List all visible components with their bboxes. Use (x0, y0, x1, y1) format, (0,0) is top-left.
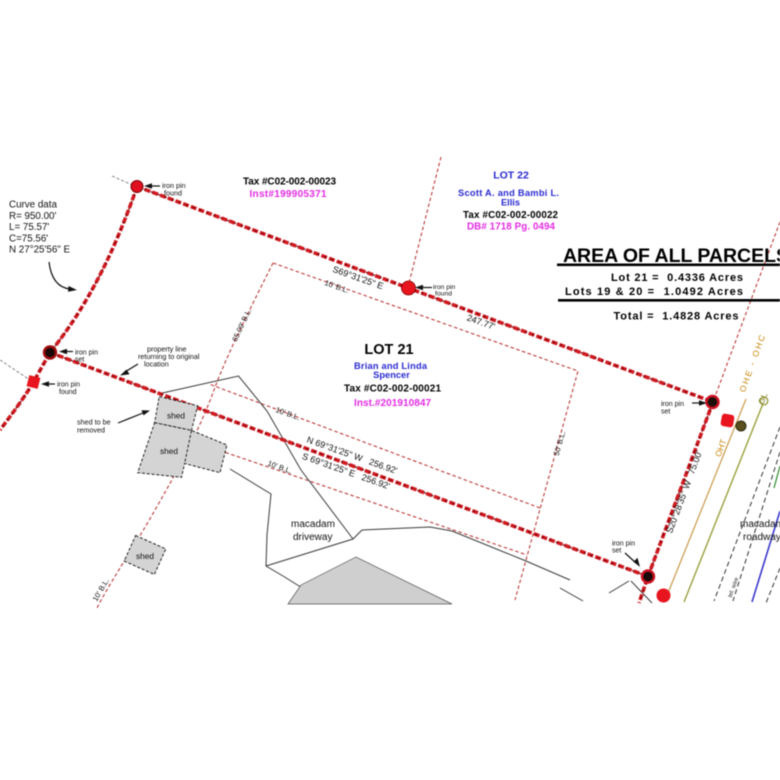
svg-text:iron pin: iron pin (75, 350, 98, 357)
svg-text:R= 950.00': R= 950.00' (9, 211, 56, 222)
svg-text:LOT 21: LOT 21 (364, 342, 413, 358)
svg-text:Tax #C02-002-00023: Tax #C02-002-00023 (243, 177, 336, 188)
svg-text:Curve data: Curve data (9, 200, 57, 211)
svg-text:Scott A. and Bambi L.: Scott A. and Bambi L. (458, 188, 559, 198)
svg-text:removed: removed (77, 426, 105, 435)
svg-text:Tax #C02-002-00021: Tax #C02-002-00021 (344, 384, 441, 395)
svg-text:Spencer: Spencer (373, 370, 410, 380)
svg-text:found: found (435, 291, 452, 298)
svg-text:location: location (144, 360, 169, 369)
svg-text:Inst.#201910847: Inst.#201910847 (354, 398, 431, 409)
svg-text:LOT 22: LOT 22 (493, 170, 529, 182)
svg-text:Lot 21 = 0.4336 Acres: Lot 21 = 0.4336 Acres (611, 272, 743, 284)
svg-text:found: found (164, 189, 182, 198)
svg-text:set: set (661, 409, 670, 416)
svg-text:iron pin: iron pin (661, 401, 684, 408)
svg-text:set: set (612, 548, 621, 555)
svg-text:shed: shed (160, 446, 178, 456)
svg-text:Tax #C02-002-00022: Tax #C02-002-00022 (463, 210, 559, 221)
svg-text:L= 75.57': L= 75.57' (9, 222, 49, 233)
svg-text:roadway: roadway (743, 532, 780, 543)
svg-text:DB# 1718 Pg. 0494: DB# 1718 Pg. 0494 (467, 222, 556, 233)
svg-text:found: found (59, 389, 77, 396)
svg-text:Inst#199905371: Inst#199905371 (250, 189, 327, 200)
svg-text:driveway: driveway (293, 532, 332, 543)
svg-text:Total = 1.4828 Acres: Total = 1.4828 Acres (614, 311, 739, 323)
svg-text:shed: shed (136, 551, 154, 561)
svg-text:iron pin: iron pin (57, 382, 80, 389)
svg-text:iron pin: iron pin (612, 541, 635, 548)
svg-text:shed: shed (167, 411, 185, 421)
svg-text:macadam: macadam (740, 519, 780, 530)
svg-text:N 27°25'56" E: N 27°25'56" E (9, 245, 70, 256)
svg-text:C=75.56': C=75.56' (9, 233, 48, 244)
svg-text:macadam: macadam (291, 519, 335, 530)
svg-text:Ellis: Ellis (501, 198, 520, 208)
svg-text:set: set (75, 357, 84, 364)
